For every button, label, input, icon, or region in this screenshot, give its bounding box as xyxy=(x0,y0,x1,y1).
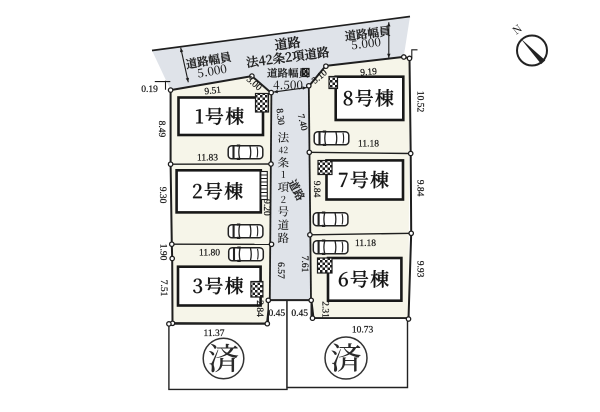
svg-text:9.20: 9.20 xyxy=(261,199,271,216)
svg-text:1.90: 1.90 xyxy=(158,244,168,261)
svg-text:9.30: 9.30 xyxy=(157,187,167,204)
svg-text:7.51: 7.51 xyxy=(158,280,168,297)
svg-text:7.61: 7.61 xyxy=(299,256,309,273)
svg-text:11.80: 11.80 xyxy=(199,249,220,259)
svg-text:0.19: 0.19 xyxy=(141,85,158,95)
svg-text:2.31: 2.31 xyxy=(320,301,330,318)
svg-text:6.57: 6.57 xyxy=(275,262,285,279)
svg-text:11.83: 11.83 xyxy=(197,154,218,164)
svg-text:0.45: 0.45 xyxy=(268,309,285,319)
svg-text:9.84: 9.84 xyxy=(415,180,425,197)
svg-text:10.73: 10.73 xyxy=(352,326,374,336)
svg-text:2.84: 2.84 xyxy=(254,300,264,317)
svg-text:9.51: 9.51 xyxy=(204,86,222,98)
svg-text:11.18: 11.18 xyxy=(358,140,379,150)
svg-text:9.93: 9.93 xyxy=(415,261,425,278)
svg-text:10.52: 10.52 xyxy=(415,91,425,113)
svg-text:11.18: 11.18 xyxy=(355,239,376,249)
svg-text:9.19: 9.19 xyxy=(360,67,378,78)
svg-text:0.45: 0.45 xyxy=(291,309,308,319)
svg-text:8.30: 8.30 xyxy=(274,108,286,126)
svg-text:9.84: 9.84 xyxy=(311,181,321,198)
svg-text:11.37: 11.37 xyxy=(203,329,224,339)
svg-text:8.49: 8.49 xyxy=(156,121,166,138)
